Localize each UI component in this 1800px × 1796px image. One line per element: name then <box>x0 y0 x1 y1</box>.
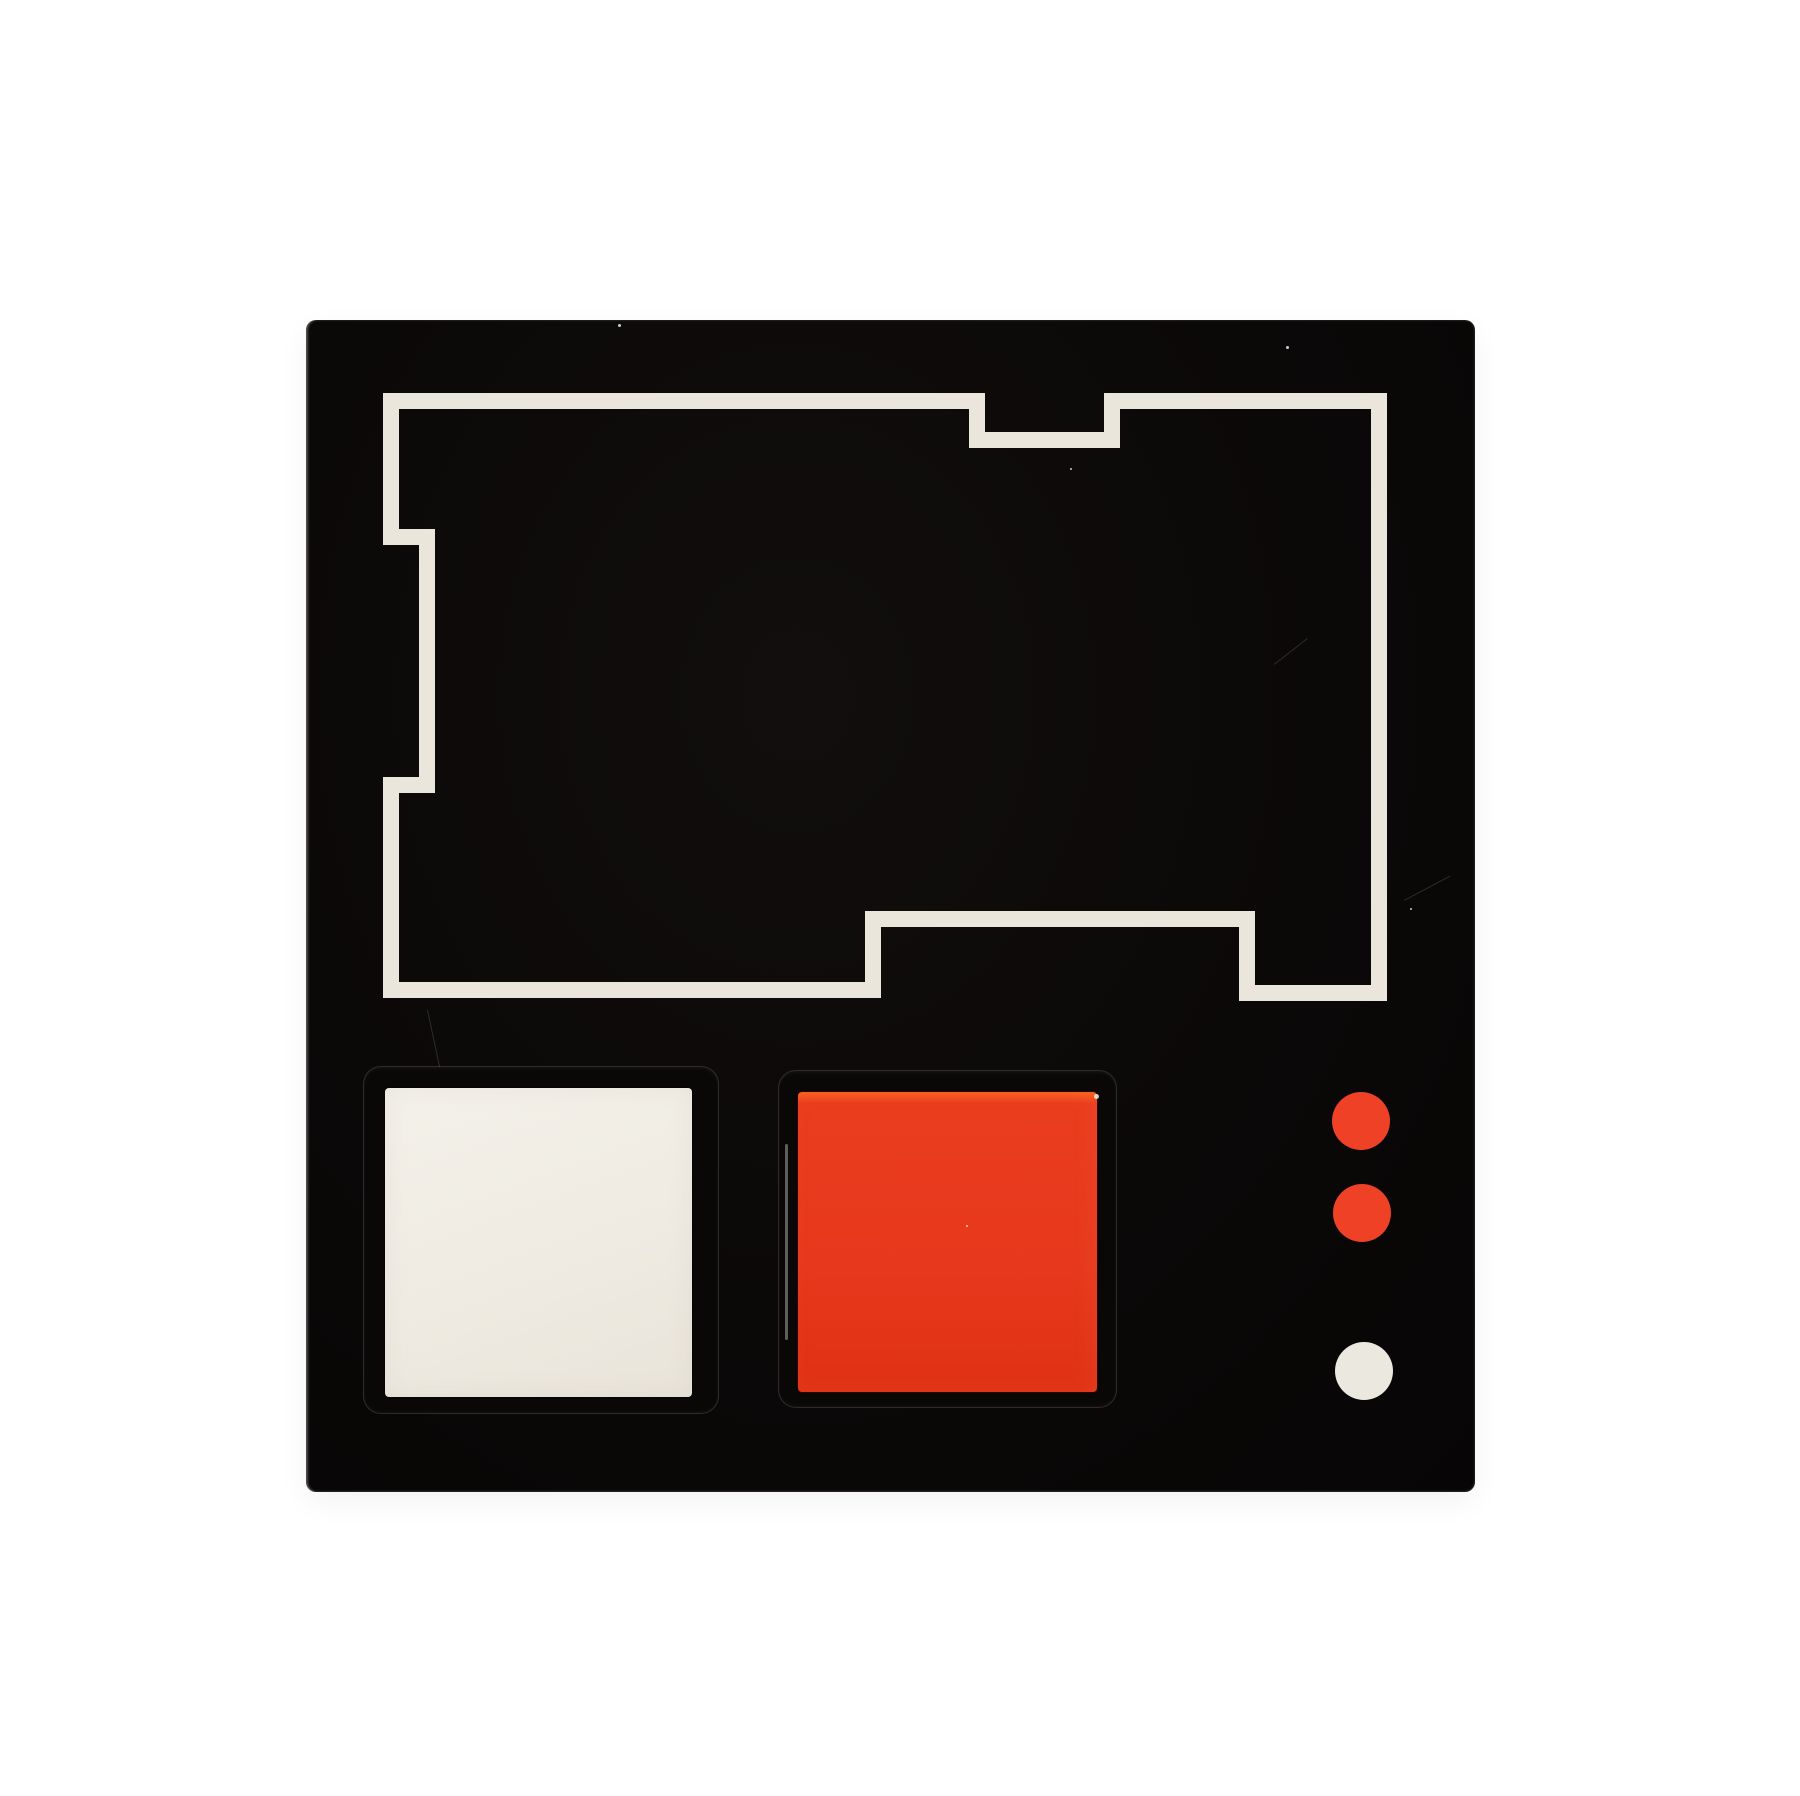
red-indicator-dot-1 <box>1332 1092 1390 1150</box>
photo-background <box>0 0 1800 1796</box>
dust-speck <box>618 324 621 327</box>
white-indicator-dot <box>1335 1342 1393 1400</box>
white-square-face <box>385 1088 692 1397</box>
red-indicator-dot-2 <box>1333 1184 1391 1242</box>
dust-speck <box>1094 1094 1099 1099</box>
red-square-button[interactable] <box>778 1070 1117 1408</box>
white-square-button[interactable] <box>363 1066 719 1414</box>
bezel-highlight <box>785 1144 788 1340</box>
red-square-face <box>798 1092 1097 1392</box>
dust-speck <box>966 1225 968 1227</box>
dust-speck <box>1070 468 1072 470</box>
dust-speck <box>1410 908 1412 910</box>
outline-path <box>391 401 1379 993</box>
dust-speck <box>1286 346 1289 349</box>
black-panel <box>306 320 1475 1492</box>
